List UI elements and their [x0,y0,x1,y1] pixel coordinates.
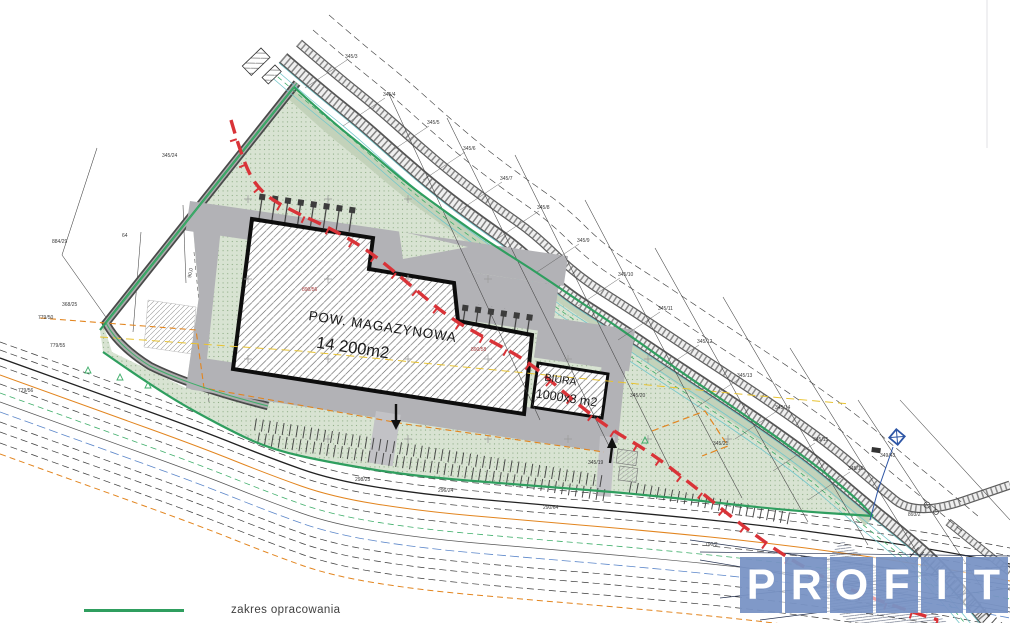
parcel-label: 345/14 [775,405,791,411]
parcel-label: 349/43 [880,453,896,459]
parcel-label: 345/16 [848,466,864,472]
parcel-label: 890/56 [302,287,318,293]
parcel-label: 345/11 [658,306,673,312]
parcel-label: 345/4 [383,92,396,98]
parcel-label: 779/50 [38,315,54,321]
parcel-label: 345/10 [618,272,634,278]
parcel-label: 345/8 [537,205,550,211]
legend-boundary-line-sample [84,609,184,612]
parcel-label: 345/21 [713,441,729,447]
parcel-label: 790/2 [705,542,718,548]
parcel-label: 345/13 [737,373,753,379]
parcel-label: 779/55 [50,343,66,349]
parcel-label: 368/25 [62,302,78,308]
apex-structures [242,48,281,84]
watermark-letter: T [966,557,1008,613]
parcel-label: 779/56 [18,388,34,394]
parcel-label: 345/24 [162,153,178,159]
parcel-label: 345/5 [427,120,440,126]
watermark-letter: P [740,557,782,613]
parcel-label: 884/29 [52,239,68,245]
watermark-letter: O [830,557,872,613]
parcel-label: 890/58 [471,347,487,353]
parcel-label: 345/15 [813,437,829,443]
parcel-label: 345/6 [463,146,476,152]
watermark-letter: I [921,557,963,613]
parcel-label: 893/2 [908,512,921,518]
legend: zakres opracowania [84,604,340,616]
parcel-label: 64 [122,233,128,239]
parcel-label: 298/25 [355,477,371,483]
parcel-label: 345/20 [630,393,646,399]
legend-label: zakres opracowania [231,604,340,616]
site-plan-page: 345/3345/4345/5345/6345/7345/8345/9345/1… [0,0,1010,623]
watermark-letter: F [876,557,918,613]
parcel-label: 290/64 [543,505,559,511]
parcel-label: 345/7 [500,176,513,182]
site-plan-svg: 345/3345/4345/5345/6345/7345/8345/9345/1… [0,0,1010,623]
watermark-letter: R [785,557,827,613]
parcel-label: 345/19 [588,460,604,466]
parcel-label: 296/24 [438,488,454,494]
parcel-label: 345/12 [697,339,713,345]
parcel-label: 345/3 [345,54,358,60]
parcel-label: 345/9 [577,238,590,244]
profit-watermark: PROFIT [740,557,1008,613]
